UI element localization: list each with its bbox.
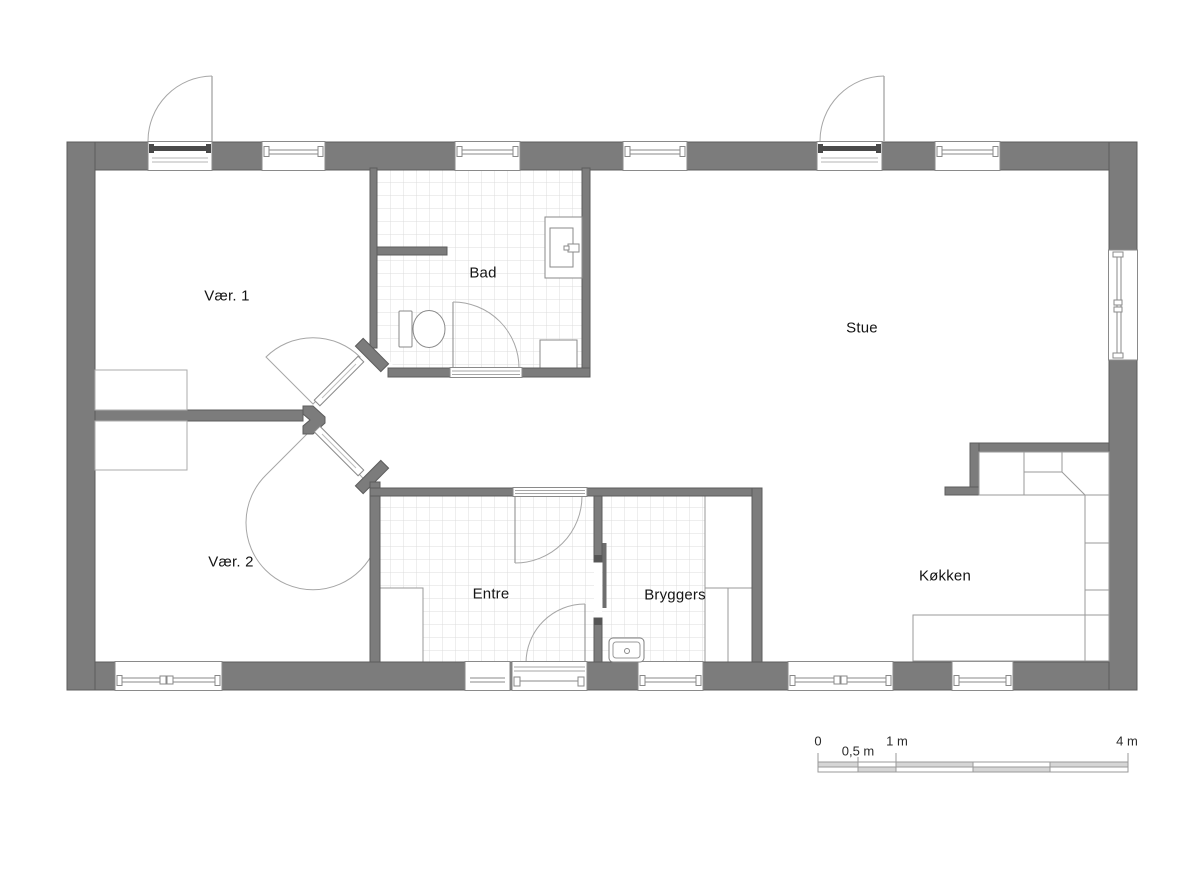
front-door (148, 142, 212, 171)
stue-door-swing (820, 76, 884, 141)
stue-window-nw (623, 142, 687, 171)
bad-south-wall-east (522, 368, 590, 377)
scale-label-4m: 4 m (1116, 734, 1138, 749)
room-label-koekken: Køkken (919, 568, 971, 585)
scale-label-1m: 1 m (886, 734, 908, 749)
room-label-entre: Entre (473, 586, 510, 603)
floor-plan: Vær. 1 Bad Stue Vær. 2 Entre Bryggers Kø… (0, 0, 1200, 870)
vaer1-wardrobe (95, 370, 187, 410)
entre-north-wall (370, 488, 513, 496)
bryggers-east-wall (752, 488, 762, 662)
sliding-door-panel (603, 543, 607, 608)
bad-window (455, 142, 520, 171)
floor-plan-drawing (0, 0, 1200, 870)
slidingdoor-stub-upper (594, 496, 602, 562)
wall-left (67, 142, 95, 690)
vaer1-window (262, 142, 325, 171)
entre-entry-door (512, 662, 587, 691)
entre-sidelight-window (465, 662, 510, 691)
wall-right (1109, 142, 1137, 690)
bad-east-wall (582, 168, 590, 377)
kitchen-counter (913, 452, 1109, 661)
room-label-bad: Bad (469, 265, 496, 282)
bad-west-wall (370, 168, 377, 348)
koekken-window-wide (788, 662, 893, 691)
entre-west-wall (370, 482, 380, 662)
room-label-vaer-2: Vær. 2 (208, 554, 253, 571)
bedroom-divider-wall (95, 410, 303, 421)
bryggers-closet (705, 496, 752, 662)
room-label-vaer-1: Vær. 1 (204, 288, 249, 305)
washbasin-icon (545, 217, 582, 278)
bryggers-window (638, 662, 703, 691)
bryggers-north-wall (587, 488, 762, 496)
bad-door-threshold (450, 368, 522, 378)
room-label-stue: Stue (846, 320, 878, 337)
stue-door (817, 142, 882, 171)
front-door-swing (148, 76, 212, 141)
utility-sink-icon (609, 638, 644, 662)
vaer2-door-swing (246, 428, 380, 590)
entre-hall-door-threshold (513, 488, 587, 497)
stue-window-ne (935, 142, 1000, 171)
bad-south-wall-west (388, 368, 450, 377)
scale-label-05m: 0,5 m (842, 744, 875, 759)
stue-window-east (1109, 250, 1138, 360)
koekken-window-east (952, 662, 1013, 691)
kitchen-stub-wall-h (970, 443, 1109, 452)
toilet-icon (399, 311, 445, 348)
interior-thresholds (450, 368, 587, 497)
vaer2-wardrobe (95, 421, 187, 470)
scale-label-0: 0 (814, 734, 821, 749)
vaer2-window (115, 662, 222, 691)
bad-corner-unit (540, 340, 577, 368)
kitchen-stub-wall-return (945, 487, 979, 495)
entre-closet (380, 588, 423, 662)
bad-shower-stub-wall (377, 247, 447, 255)
room-label-bryggers: Bryggers (644, 587, 706, 604)
